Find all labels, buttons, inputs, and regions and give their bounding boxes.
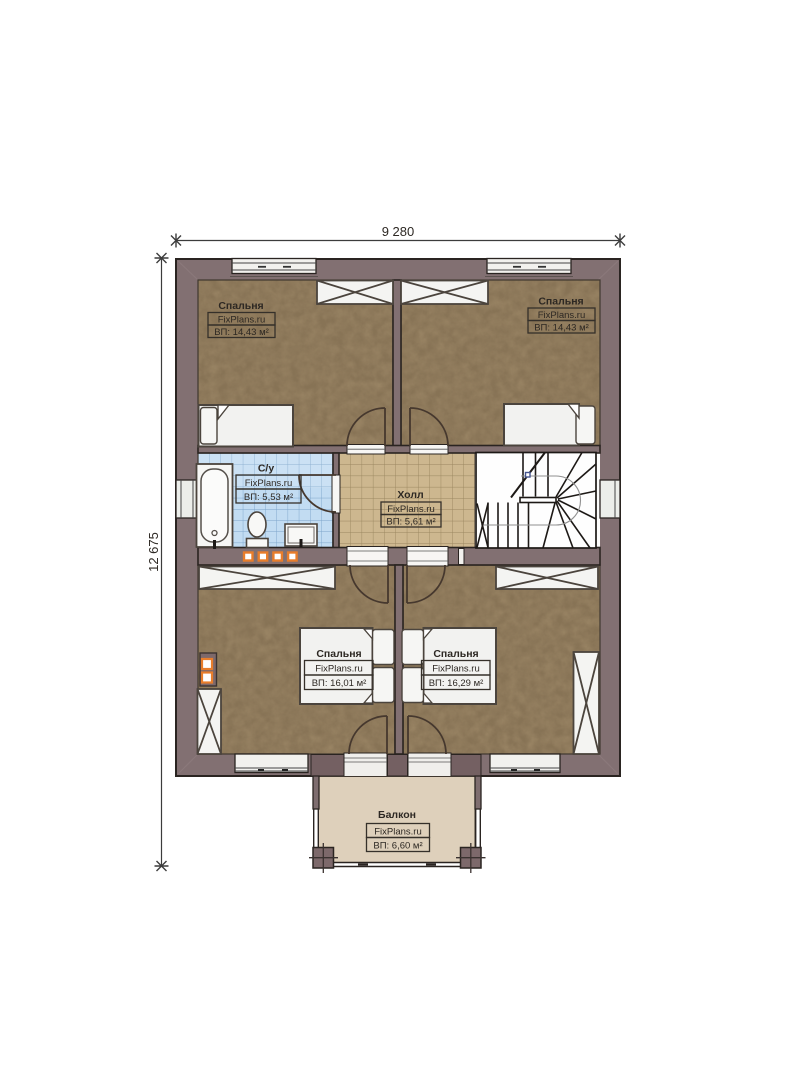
svg-text:ВП: 6,60 м²: ВП: 6,60 м² xyxy=(373,840,422,851)
svg-text:FixPlans.ru: FixPlans.ru xyxy=(374,826,422,837)
svg-text:Холл: Холл xyxy=(397,489,423,501)
svg-text:12 675: 12 675 xyxy=(146,532,161,572)
svg-text:Спальня: Спальня xyxy=(433,648,478,660)
svg-text:ВП: 16,29 м²: ВП: 16,29 м² xyxy=(429,678,484,689)
svg-text:Спальня: Спальня xyxy=(538,296,583,308)
svg-text:FixPlans.ru: FixPlans.ru xyxy=(245,478,293,489)
svg-text:Спальня: Спальня xyxy=(316,648,361,660)
svg-text:FixPlans.ru: FixPlans.ru xyxy=(218,314,266,325)
svg-text:ВП: 14,43 м²: ВП: 14,43 м² xyxy=(534,322,589,333)
svg-text:FixPlans.ru: FixPlans.ru xyxy=(315,663,363,674)
svg-text:ВП: 14,43 м²: ВП: 14,43 м² xyxy=(214,327,269,338)
svg-text:FixPlans.ru: FixPlans.ru xyxy=(432,663,480,674)
svg-text:FixPlans.ru: FixPlans.ru xyxy=(387,504,435,515)
svg-text:Балкон: Балкон xyxy=(378,809,416,821)
svg-text:ВП: 16,01 м²: ВП: 16,01 м² xyxy=(312,678,367,689)
svg-text:ВП: 5,61 м²: ВП: 5,61 м² xyxy=(386,516,435,527)
svg-text:FixPlans.ru: FixPlans.ru xyxy=(538,310,586,321)
svg-text:9 280: 9 280 xyxy=(382,224,415,239)
svg-text:ВП: 5,53 м²: ВП: 5,53 м² xyxy=(244,492,293,503)
svg-text:Спальня: Спальня xyxy=(218,300,263,312)
svg-text:С/у: С/у xyxy=(258,463,275,475)
